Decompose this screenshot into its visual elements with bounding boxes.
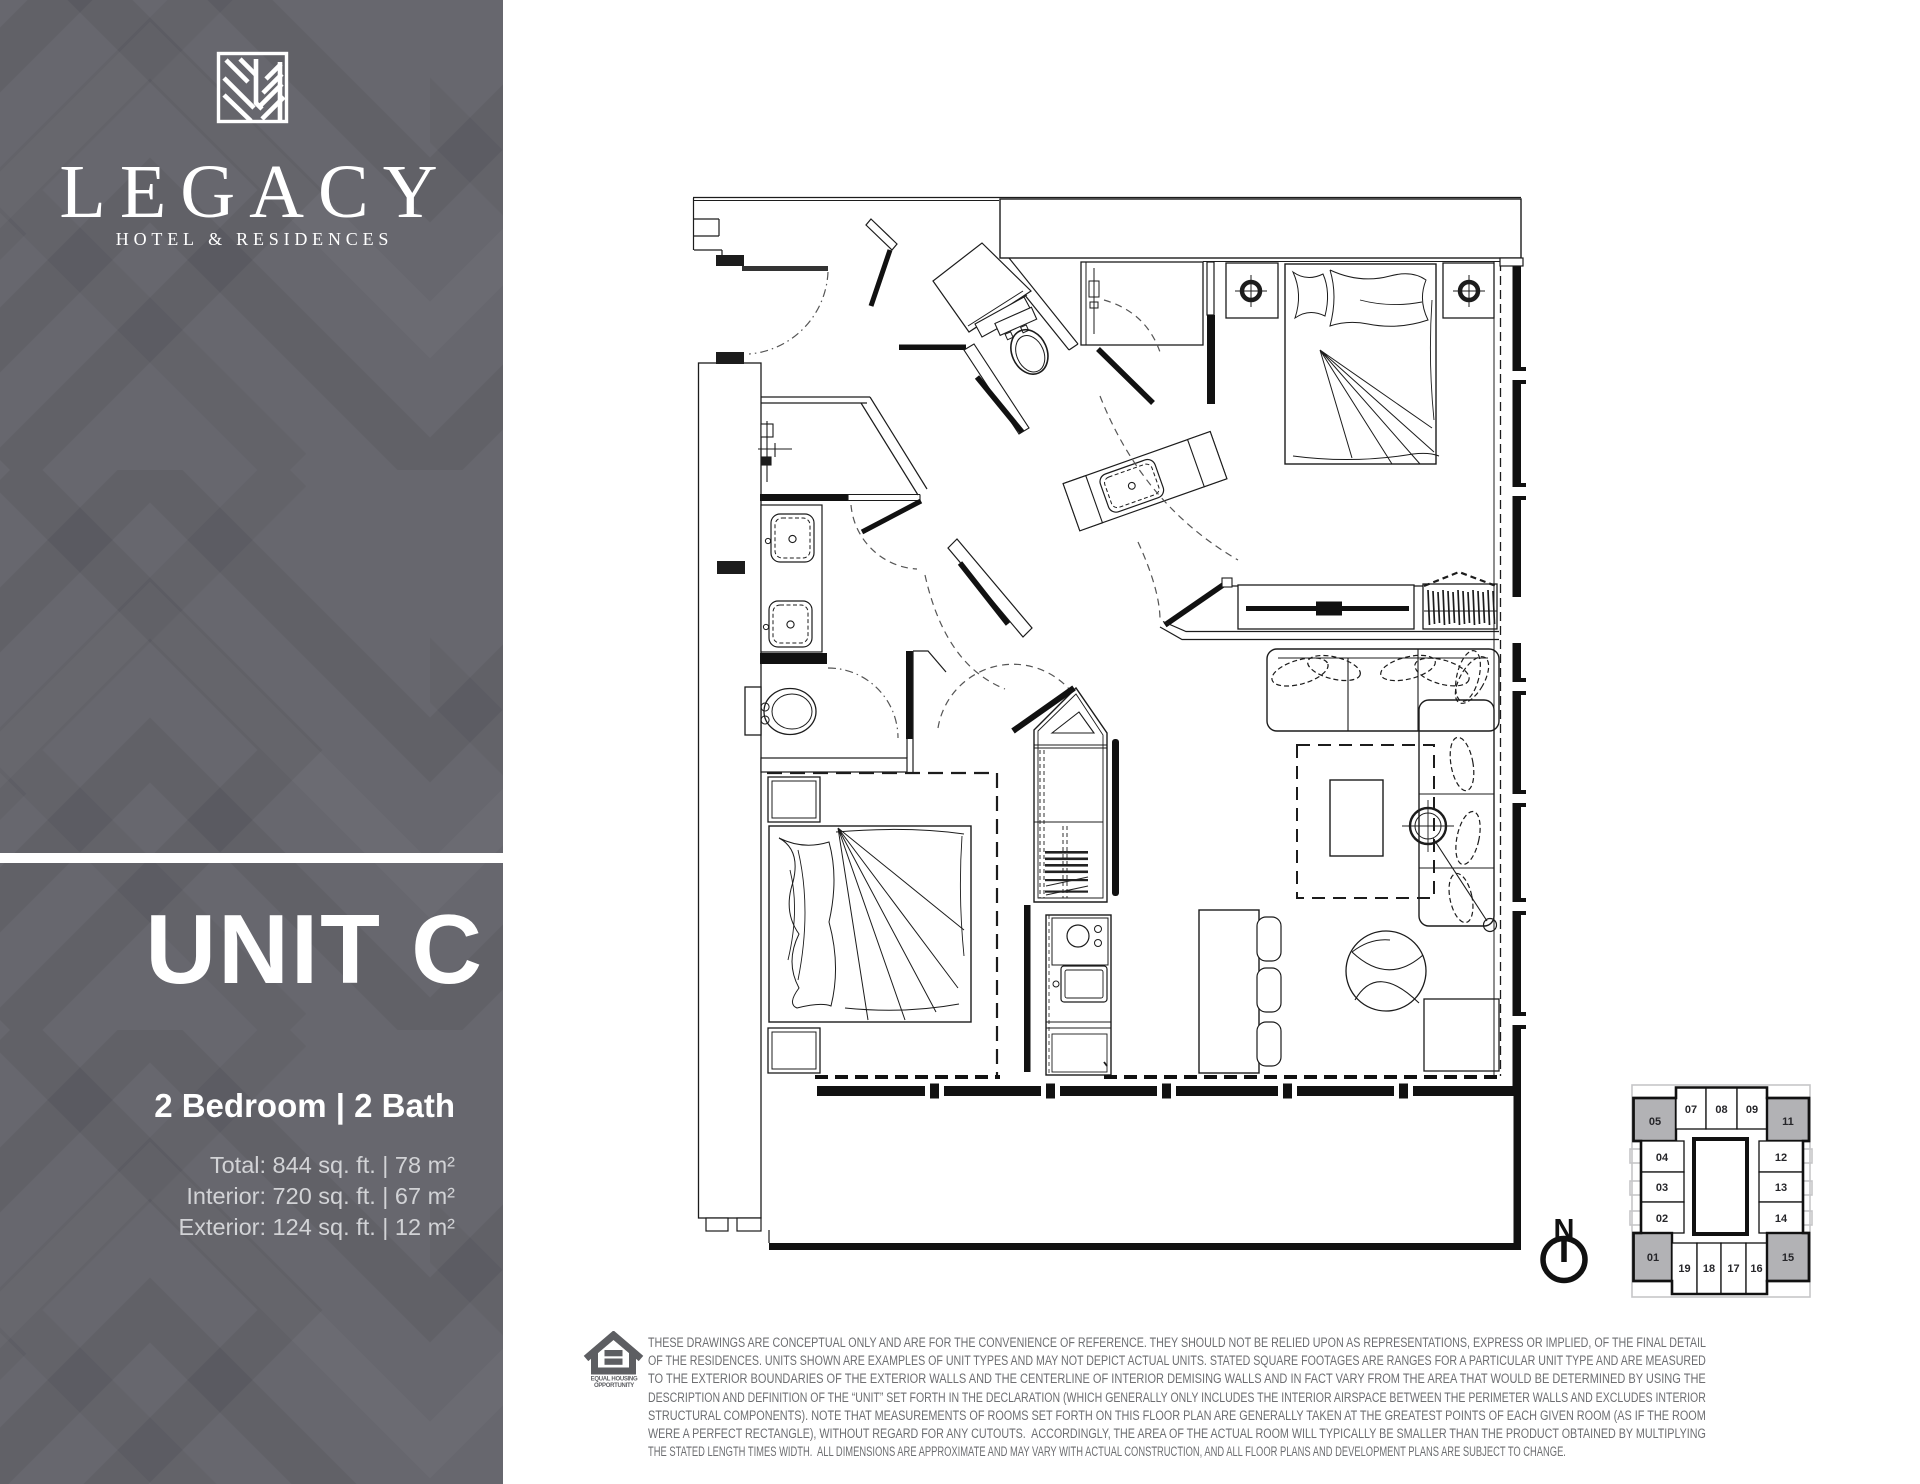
svg-text:07: 07	[1685, 1104, 1697, 1116]
svg-text:09: 09	[1746, 1104, 1758, 1116]
svg-text:17: 17	[1727, 1263, 1739, 1275]
svg-text:OPPORTUNITY: OPPORTUNITY	[594, 1383, 634, 1389]
svg-text:11: 11	[1782, 1116, 1794, 1128]
svg-text:19: 19	[1678, 1263, 1690, 1275]
svg-text:03: 03	[1656, 1182, 1668, 1194]
svg-text:16: 16	[1750, 1263, 1762, 1275]
svg-text:18: 18	[1703, 1263, 1715, 1275]
svg-text:14: 14	[1775, 1213, 1788, 1225]
svg-text:12: 12	[1775, 1152, 1787, 1164]
svg-text:08: 08	[1715, 1104, 1727, 1116]
svg-text:13: 13	[1775, 1182, 1787, 1194]
svg-text:05: 05	[1649, 1116, 1661, 1128]
svg-text:04: 04	[1656, 1152, 1669, 1164]
svg-text:02: 02	[1656, 1213, 1668, 1225]
svg-text:EQUAL HOUSING: EQUAL HOUSING	[591, 1377, 638, 1383]
svg-text:15: 15	[1782, 1252, 1794, 1264]
svg-text:01: 01	[1647, 1252, 1659, 1264]
